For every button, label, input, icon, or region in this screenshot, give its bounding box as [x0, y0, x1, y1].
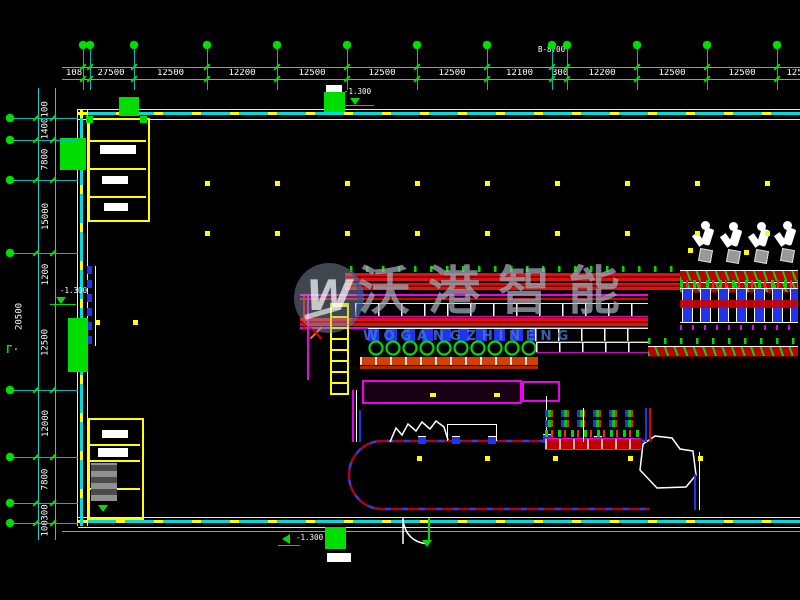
column-top-center-cap [326, 85, 342, 92]
column-dot [698, 456, 703, 461]
grid-line-vertical [347, 48, 348, 90]
dimension-label-top: 12200 [207, 69, 277, 78]
elevation-label-top: -1.300 [344, 88, 371, 96]
column-dot [485, 456, 490, 461]
axis-bubble-top [548, 41, 556, 49]
grid-line-horizontal [8, 118, 78, 119]
axis-bubble-top [563, 41, 571, 49]
elevation-label-left: -1.300 [60, 287, 87, 295]
room-corner-column [86, 116, 93, 123]
stair-flight [102, 176, 128, 184]
axis-bubble-left [6, 386, 14, 394]
watermark-subtitle: WOGANGZHINENG [363, 328, 693, 344]
axis-bubble-top [130, 41, 138, 49]
red-riser [649, 408, 651, 442]
dimension-label-left: 15000 [42, 180, 51, 253]
green-door-mark [428, 518, 430, 542]
axis-bubble-top [633, 41, 641, 49]
grid-line-horizontal [8, 253, 78, 254]
robot-arm [722, 222, 746, 264]
axis-bubble-top [703, 41, 711, 49]
dimension-label-top: 12500 [347, 69, 417, 78]
dimension-label-left: 7800 [42, 140, 51, 180]
stair-line [88, 168, 146, 170]
robot-arm [750, 222, 774, 264]
grid-line-horizontal [8, 523, 78, 524]
axis-bubble-left [6, 114, 14, 122]
dimension-label-top: 12500 [417, 69, 487, 78]
robot-arm [776, 221, 800, 263]
stair-line [88, 444, 140, 446]
loop-station [418, 436, 426, 444]
green-door-arrow [422, 540, 432, 547]
column-dot-row [205, 181, 770, 186]
top-dim-line-2 [62, 79, 800, 80]
axis-bubble-top [86, 41, 94, 49]
column-dot [744, 250, 749, 255]
grid-line-vertical [277, 48, 278, 90]
grid-line-vertical [707, 48, 708, 90]
dimension-label-top: 12500 [707, 69, 777, 78]
green-v-row-bottom [545, 430, 641, 437]
cad-floor-plan: B-8700 20500 Γ· -1.300 -1.300 -1.300 [0, 0, 800, 600]
loop-station [452, 436, 460, 444]
column-left-wall-mid [68, 318, 88, 372]
bottom-red-conveyor [545, 438, 641, 450]
magenta-conveyor-short [522, 381, 560, 402]
column-dot [628, 456, 633, 461]
elevation-triangle-bottom [282, 534, 290, 544]
elevation-line-bottom [278, 545, 300, 546]
column-dot [95, 320, 100, 325]
flow-arrow [98, 505, 108, 512]
blue-riser [645, 408, 647, 442]
axis-bubble-left [6, 176, 14, 184]
white-post [583, 408, 584, 442]
conveyor-dot [494, 393, 500, 397]
loop-station [488, 436, 496, 444]
wc-fixtures [91, 463, 117, 501]
grid-line-vertical [207, 48, 208, 90]
grid-line-vertical [90, 48, 91, 90]
dimension-label-left: 7800 [42, 457, 51, 503]
column-dot [133, 320, 138, 325]
axis-bubble-top [483, 41, 491, 49]
elevation-line-top [344, 105, 374, 106]
top-dim-line-1 [62, 67, 800, 68]
column-bottom-center [325, 527, 346, 549]
dimension-label-top: 12200 [567, 69, 637, 78]
dimension-label-top: 12500 [134, 69, 207, 78]
grid-line-horizontal [8, 180, 78, 181]
equipment-fleck-row [545, 420, 640, 427]
column-dot-row [205, 231, 770, 236]
stair-line [88, 196, 146, 198]
grid-line-horizontal [8, 503, 78, 504]
stair-line [88, 460, 140, 462]
grid-line-vertical [777, 48, 778, 90]
column-bottom-pad [327, 553, 351, 562]
orange-conveyor-edge [360, 366, 538, 369]
conveyor-dot [430, 393, 436, 397]
stair-flight [98, 448, 128, 457]
equipment-fleck-row [545, 410, 640, 417]
column-left-large [60, 138, 86, 170]
grid-line-horizontal [8, 140, 78, 141]
dimension-label-top: 12500 [637, 69, 707, 78]
left-wall-door-jamb [95, 266, 96, 346]
watermark-logo: W [294, 263, 364, 333]
bottom-offset-line [62, 531, 800, 532]
axis-bubble-top [203, 41, 211, 49]
axis-bubble-top [773, 41, 781, 49]
dimension-label-top: 12500 [277, 69, 347, 78]
grid-line-vertical [637, 48, 638, 90]
magenta-conveyor-long [362, 380, 522, 404]
column-dot [417, 456, 422, 461]
column-dot [553, 456, 558, 461]
axis-bubble-left [6, 249, 14, 257]
axis-bubble-top [343, 41, 351, 49]
grid-line-vertical [487, 48, 488, 90]
dimension-label-top: 12100 [487, 69, 552, 78]
dimension-label-left: 12000 [42, 390, 51, 457]
stair-flight [102, 430, 128, 438]
axis-bubble-left [6, 136, 14, 144]
stair-flight [100, 145, 136, 154]
dimension-label-top: 27500 [88, 69, 134, 78]
dimension-label-left: 100 [42, 104, 51, 118]
grid-line-horizontal [8, 390, 78, 391]
column-dot [688, 248, 693, 253]
grid-line-vertical [417, 48, 418, 90]
stair-line [88, 140, 146, 142]
dimension-label-left: 1200 [42, 253, 51, 296]
axis-bubble-left [6, 453, 14, 461]
elevation-line-left [50, 304, 76, 305]
grid-line-vertical [567, 48, 568, 90]
axis-bubble-top [413, 41, 421, 49]
corner-symbol: Γ· [6, 344, 19, 355]
elevation-triangle-left [56, 297, 66, 304]
watermark-title: 沃港智能 [358, 264, 708, 320]
left-dim-line-1 [38, 88, 39, 540]
elevation-triangle-top [350, 98, 360, 105]
grid-line-horizontal [8, 457, 78, 458]
stair-flight [104, 203, 128, 211]
watermark: W 沃港智能 WOGANGZHINENG [285, 256, 715, 360]
blue-drop [694, 474, 696, 510]
grid-line-vertical [83, 48, 84, 90]
axis-bubble-left [6, 519, 14, 527]
elevation-label-bottom: -1.300 [296, 534, 323, 542]
axis-bubble-left [6, 499, 14, 507]
left-dim-line-2 [55, 88, 56, 540]
room-corner-column [140, 116, 147, 123]
overall-left-dimension: 20500 [16, 288, 25, 346]
column-top-center [324, 92, 345, 112]
bottom-wall [78, 517, 800, 528]
top-wall [78, 109, 800, 120]
grid-line-vertical [552, 48, 553, 90]
dimension-label-left: 12500 [42, 296, 51, 390]
column-top-wall [119, 97, 139, 116]
grid-line-vertical [134, 48, 135, 90]
axis-bubble-top [273, 41, 281, 49]
